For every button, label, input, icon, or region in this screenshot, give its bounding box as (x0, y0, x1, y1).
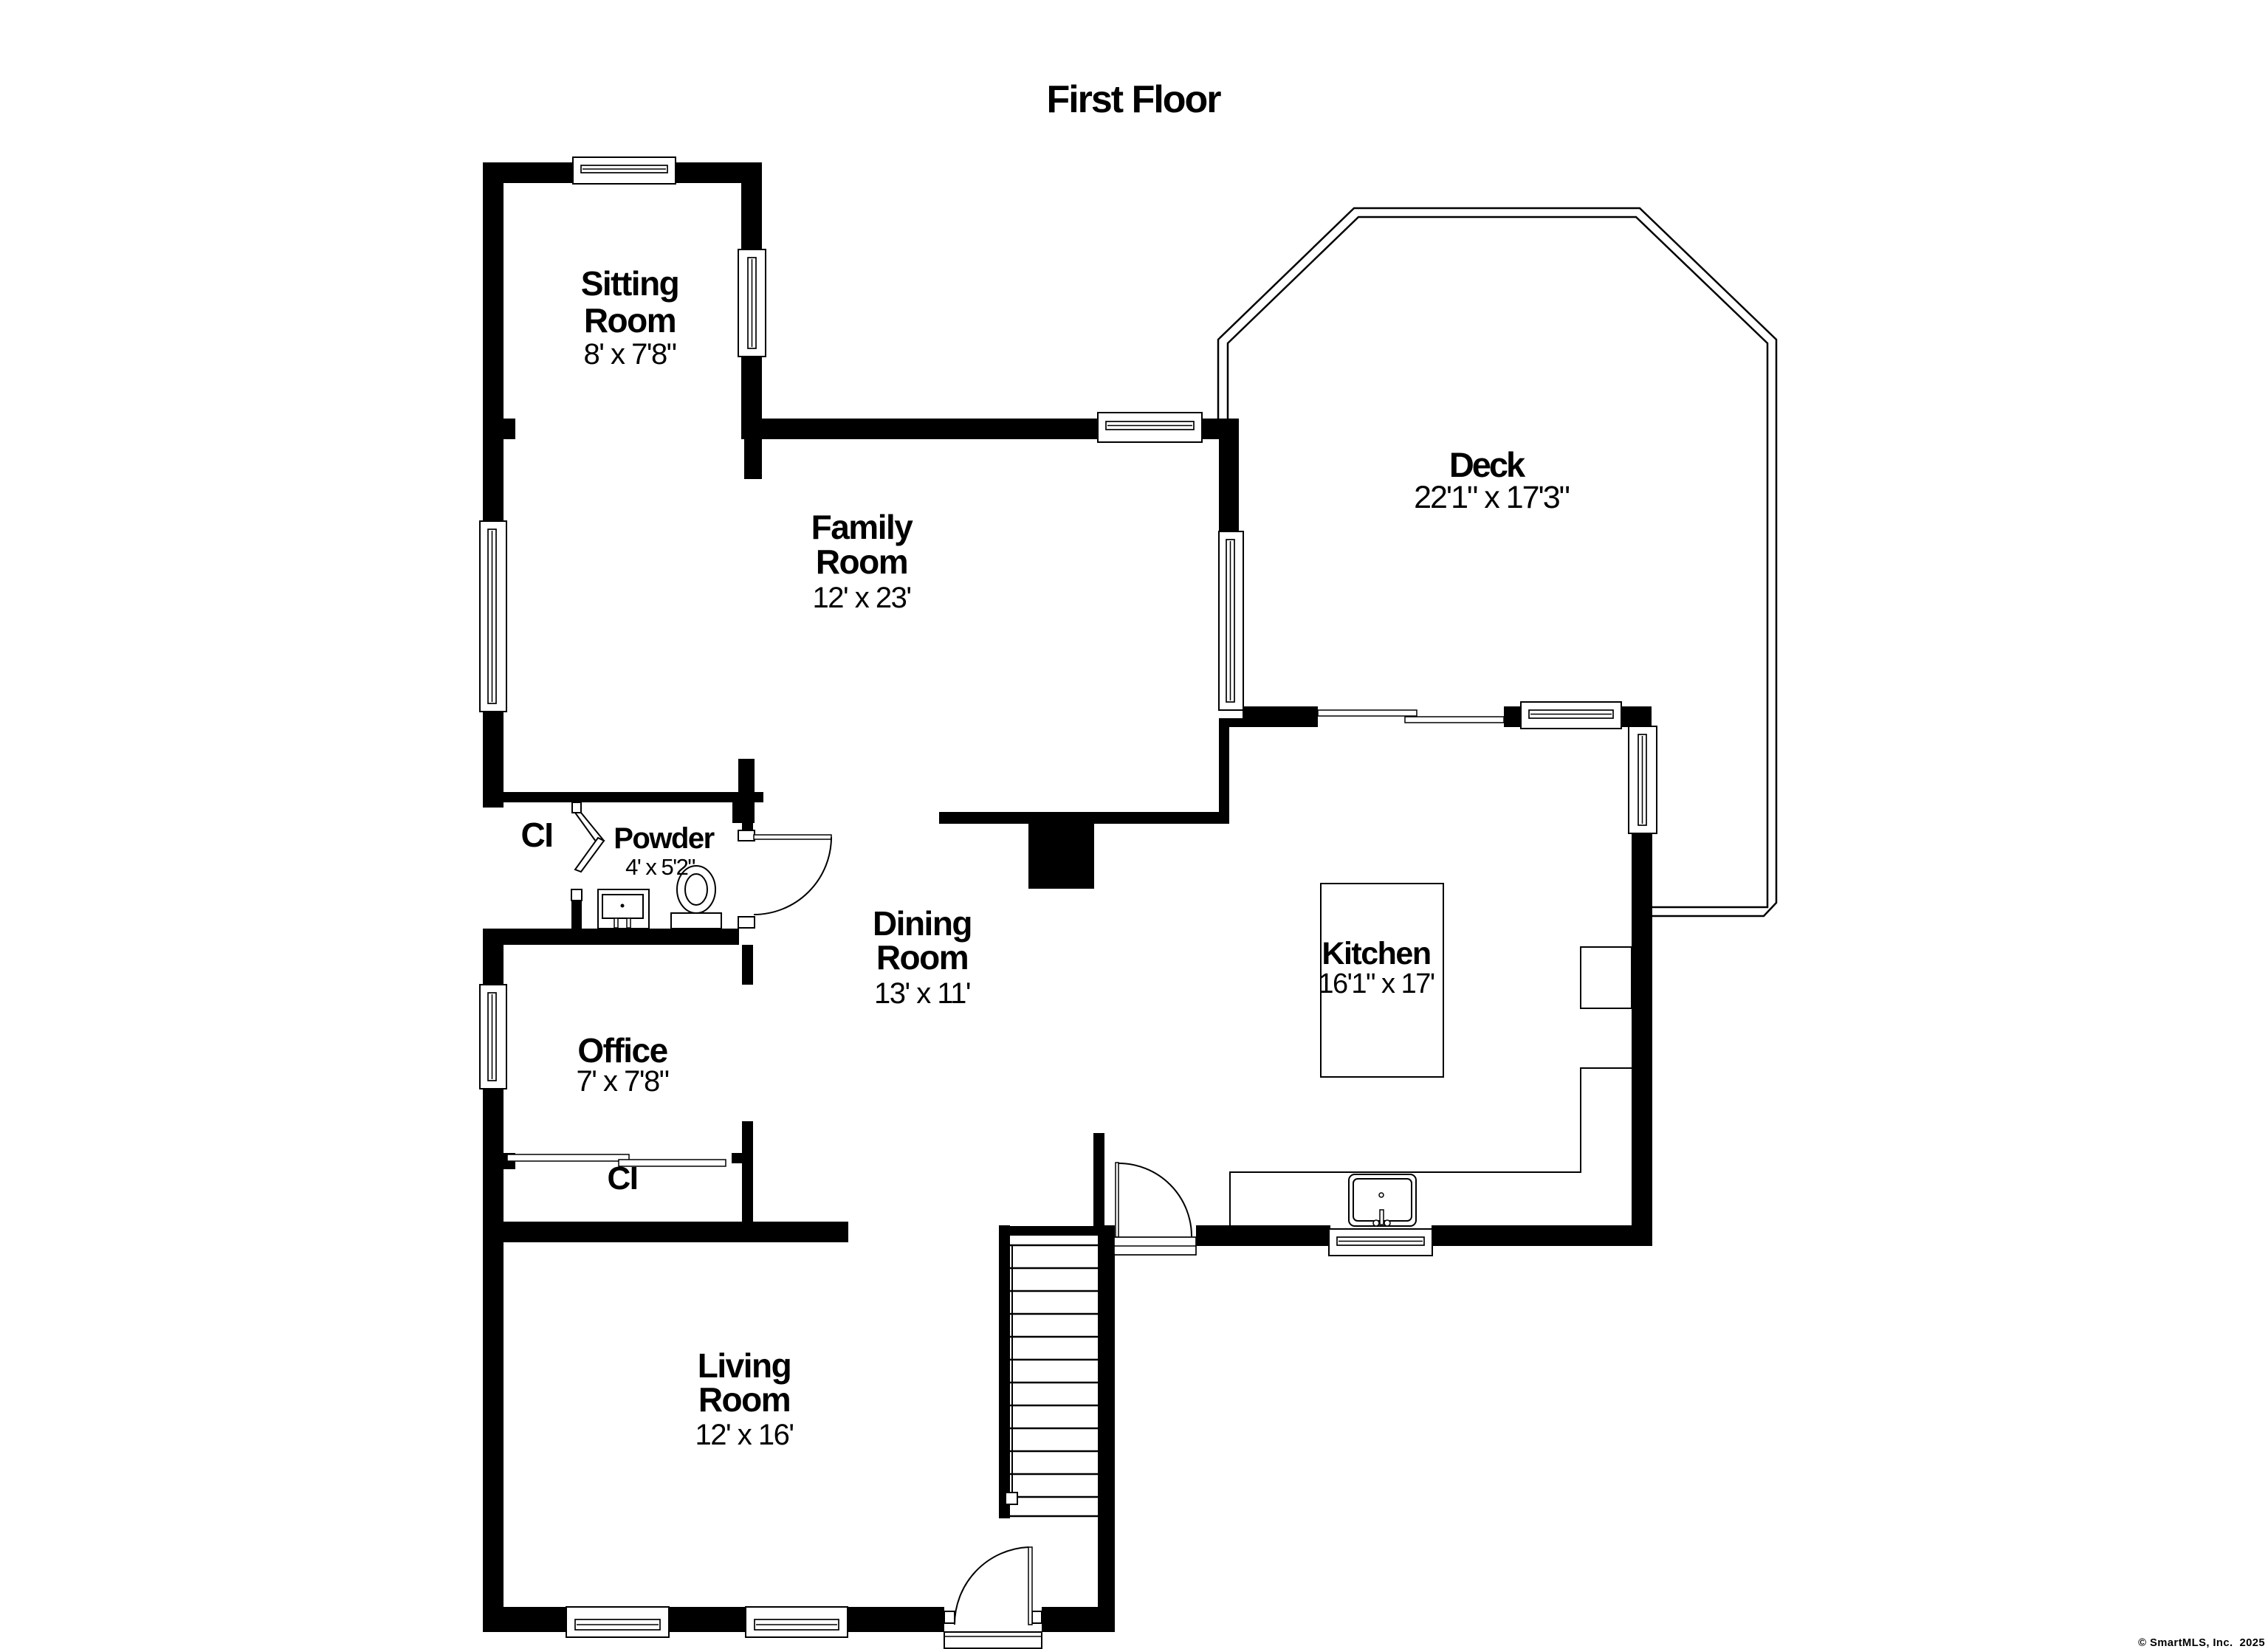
svg-text:22'1" x 17'3": 22'1" x 17'3" (1414, 480, 1570, 515)
svg-text:13' x 11': 13' x 11' (874, 977, 970, 1010)
svg-text:Powder: Powder (614, 822, 714, 855)
svg-text:16'1" x 17': 16'1" x 17' (1318, 968, 1434, 999)
svg-text:Room: Room (698, 1380, 790, 1419)
svg-text:CI: CI (521, 816, 553, 854)
svg-text:Family: Family (811, 508, 914, 546)
svg-text:Room: Room (816, 543, 907, 581)
svg-text:12' x 16': 12' x 16' (695, 1419, 794, 1451)
svg-text:12' x 23': 12' x 23' (813, 582, 911, 614)
svg-text:Room: Room (876, 938, 968, 977)
svg-text:© SmartMLS, Inc. 2025: © SmartMLS, Inc. 2025 (2138, 1637, 2265, 1649)
svg-text:Deck: Deck (1449, 445, 1526, 484)
svg-text:Dining: Dining (873, 904, 972, 943)
svg-text:CI: CI (608, 1160, 638, 1197)
svg-text:4' x 5'2": 4' x 5'2" (625, 854, 695, 880)
svg-text:Living: Living (698, 1346, 791, 1385)
svg-text:Room: Room (584, 301, 676, 340)
svg-text:Office: Office (577, 1031, 667, 1070)
svg-text:8' x 7'8": 8' x 7'8" (584, 338, 676, 371)
svg-text:Sitting: Sitting (581, 264, 679, 303)
svg-text:First Floor: First Floor (1046, 78, 1221, 121)
svg-text:Kitchen: Kitchen (1322, 936, 1430, 971)
svg-text:7' x 7'8": 7' x 7'8" (577, 1065, 669, 1098)
